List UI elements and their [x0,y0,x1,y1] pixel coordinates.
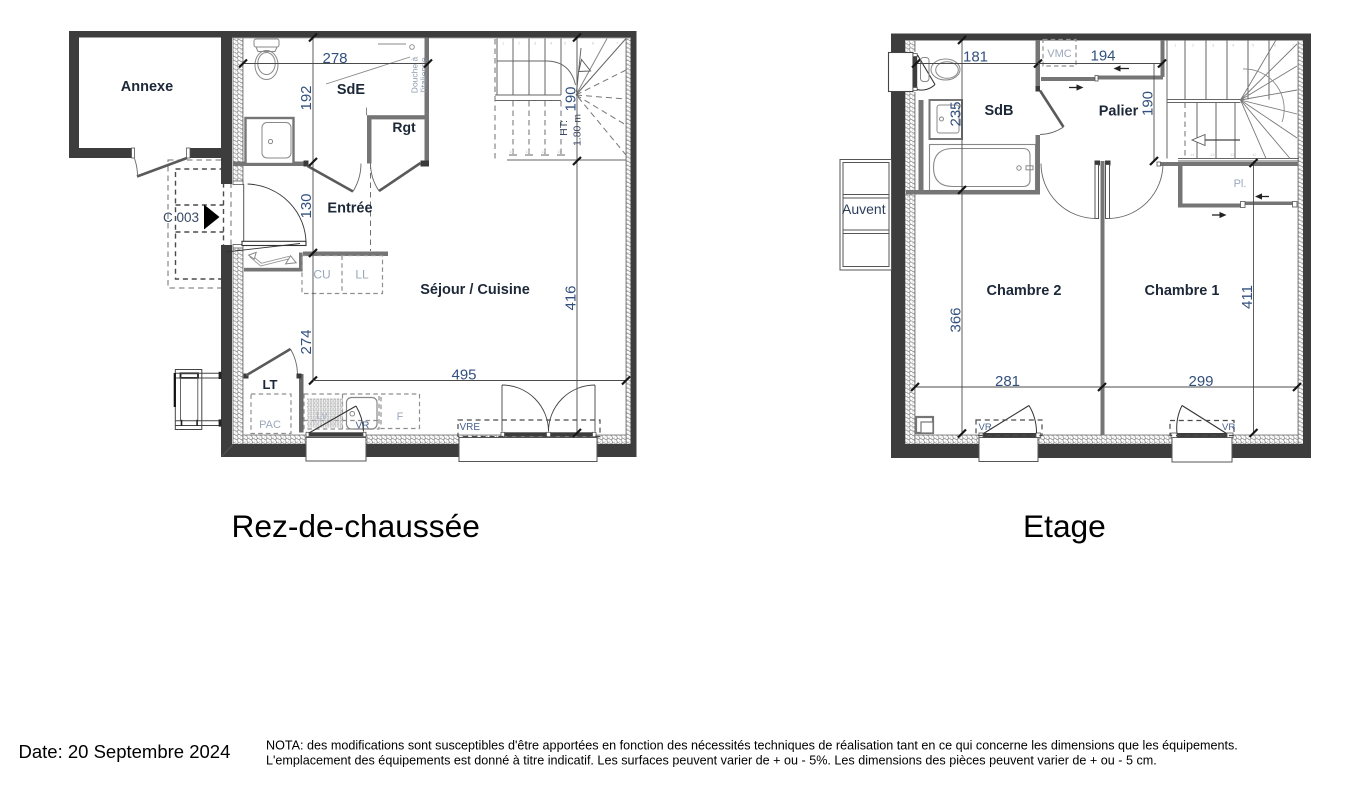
svg-text:495: 495 [451,367,476,384]
svg-text:L'emplacement des équipements: L'emplacement des équipements est donné … [266,753,1157,767]
svg-text:130: 130 [298,193,315,218]
svg-text:Rez-de-chaussée: Rez-de-chaussée [232,508,480,544]
svg-text:14: 14 [1190,152,1195,157]
svg-text:190: 190 [1140,91,1157,116]
svg-text:Chambre 2: Chambre 2 [987,283,1062,299]
svg-text:HT:: HT: [558,120,570,136]
svg-text:F: F [397,411,404,423]
svg-text:235: 235 [948,101,965,126]
svg-text:C 003: C 003 [163,210,199,225]
svg-text:VR: VR [979,422,992,433]
svg-text:416: 416 [563,285,580,310]
svg-text:411: 411 [1239,285,1256,309]
svg-text:13: 13 [1210,152,1215,157]
svg-text:Palier: Palier [1099,104,1139,120]
svg-text:366: 366 [948,307,965,332]
svg-text:274: 274 [298,329,315,354]
svg-text:VMC: VMC [1047,48,1072,60]
svg-text:14: 14 [509,149,514,154]
svg-text:l'italienne: l'italienne [419,57,429,92]
svg-text:299: 299 [1188,373,1213,390]
svg-text:Chambre 1: Chambre 1 [1145,283,1220,299]
svg-text:Entrée: Entrée [327,201,372,217]
svg-text:PAC: PAC [259,419,281,431]
svg-text:181: 181 [963,49,988,66]
svg-text:VRE: VRE [460,422,481,433]
svg-text:Pl.: Pl. [1234,178,1247,190]
svg-text:VR: VR [1222,422,1235,433]
svg-text:1.80 m: 1.80 m [572,114,584,146]
svg-text:LV: LV [316,411,328,422]
svg-text:13: 13 [525,149,530,154]
svg-text:NOTA: des modifications sont s: NOTA: des modifications sont susceptible… [266,739,1238,753]
svg-text:192: 192 [298,85,315,110]
svg-text:12: 12 [1230,152,1235,157]
svg-text:LL: LL [355,268,369,282]
svg-text:Rgt: Rgt [392,119,416,135]
svg-text:CU: CU [313,268,330,282]
svg-text:SdB: SdB [985,103,1014,119]
svg-text:SdE: SdE [337,82,366,98]
svg-text:Auvent: Auvent [842,201,886,217]
svg-text:194: 194 [1090,48,1115,65]
svg-text:190: 190 [563,86,580,111]
svg-text:278: 278 [322,50,347,67]
svg-text:Annexe: Annexe [121,79,173,95]
svg-text:12: 12 [541,149,546,154]
svg-text:LT: LT [263,377,278,392]
svg-text:Séjour / Cuisine: Séjour / Cuisine [420,282,530,298]
svg-text:281: 281 [995,373,1020,390]
svg-text:Etage: Etage [1023,508,1106,544]
svg-text:Date: 20 Septembre 2024: Date: 20 Septembre 2024 [19,741,231,762]
